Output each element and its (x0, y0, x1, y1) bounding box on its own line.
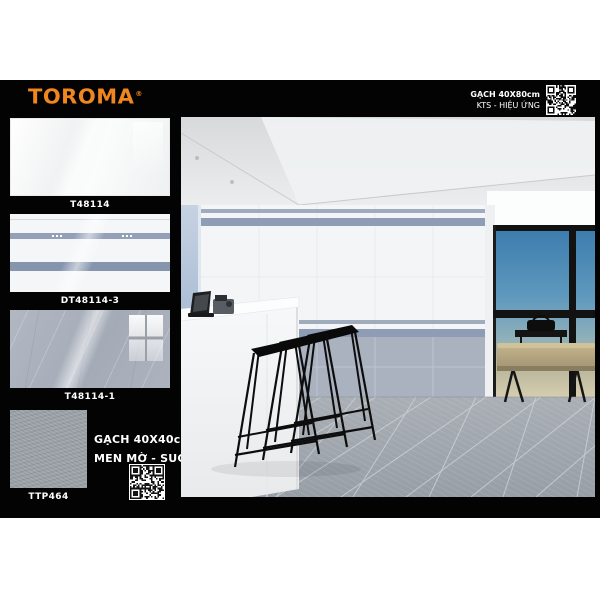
window-reflection (129, 315, 163, 361)
tile-swatch-white-gloss (10, 118, 170, 196)
room-scene-svg (181, 117, 595, 497)
brand-logo: TOROMA® (28, 85, 143, 108)
tile-code-label: T48114-1 (10, 388, 170, 406)
tile-code-label: TTP464 (10, 488, 87, 506)
window-reflection (133, 122, 163, 174)
stripe-dots (52, 235, 54, 237)
tile-swatch-decor-stripes (10, 214, 170, 292)
wall-stripe-thin (201, 209, 489, 213)
header-text: GẠCH 40X80cm KTS - HIỆU ỨNG (470, 85, 540, 111)
tile-code-label: DT48114-3 (10, 292, 170, 310)
decor-dot-stripe (10, 233, 170, 239)
tile-code-label: T48114 (10, 196, 170, 214)
qr-code-icon (546, 85, 576, 115)
ceiling-light (195, 156, 199, 160)
header-size-label: GẠCH 40X80cm (470, 89, 540, 100)
tile-swatch-gray-texture (10, 410, 87, 488)
room-scene (181, 117, 595, 497)
registered-mark: ® (135, 90, 143, 98)
qr-code-icon (129, 464, 165, 500)
ceiling-light (230, 180, 234, 184)
header-info: GẠCH 40X80cm KTS - HIỆU ỨNG (470, 85, 576, 115)
header-effect-label: KTS - HIỆU ỨNG (470, 100, 540, 111)
decor-faint-line (10, 219, 170, 220)
poster-background: TOROMA® GẠCH 40X80cm KTS - HIỆU ỨNG T481… (0, 80, 600, 518)
catalog-page: TOROMA® GẠCH 40X80cm KTS - HIỆU ỨNG T481… (0, 0, 600, 600)
decor-thick-stripe (10, 262, 170, 271)
brand-logo-text: TOROMA (28, 85, 134, 108)
window (493, 225, 595, 397)
tile-swatch-gray-marble (10, 310, 170, 388)
tile-texture (10, 410, 87, 488)
wall-stripe-thick (201, 218, 489, 226)
marble-veins (10, 310, 170, 388)
stripe-dots (122, 235, 124, 237)
